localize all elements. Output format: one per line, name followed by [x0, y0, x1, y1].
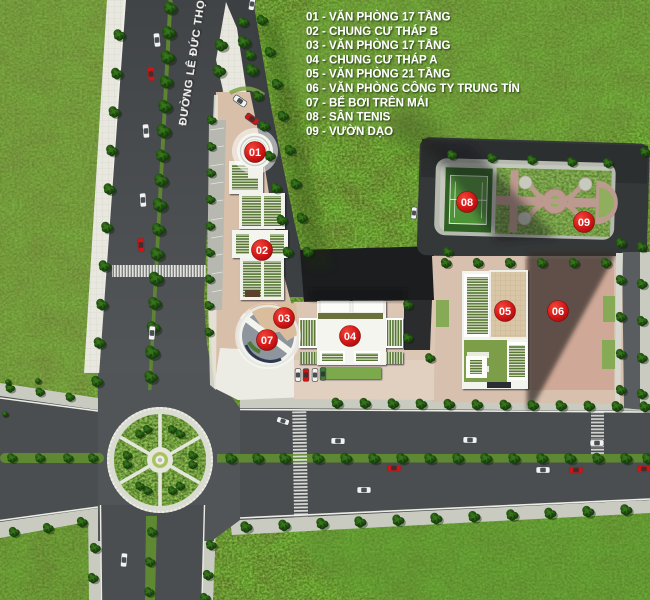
svg-text:01 - VĂN PHÒNG 17 TẦNG: 01 - VĂN PHÒNG 17 TẦNG — [306, 11, 450, 24]
svg-text:09 - VƯỜN DẠO: 09 - VƯỜN DẠO — [306, 125, 393, 138]
svg-text:07 - BỂ BƠI TRÊN MÁI: 07 - BỂ BƠI TRÊN MÁI — [306, 96, 428, 109]
svg-text:03 - VĂN PHÒNG 17 TẦNG: 03 - VĂN PHÒNG 17 TẦNG — [306, 39, 450, 52]
svg-text:06: 06 — [552, 306, 564, 318]
svg-text:02: 02 — [256, 245, 268, 257]
svg-text:01: 01 — [249, 147, 261, 159]
svg-text:05: 05 — [499, 306, 511, 318]
svg-text:07: 07 — [261, 335, 273, 347]
svg-text:03: 03 — [278, 313, 290, 325]
svg-text:05 - VĂN PHÒNG 21 TẦNG: 05 - VĂN PHÒNG 21 TẦNG — [306, 68, 450, 81]
svg-text:02 - CHUNG CƯ THÁP B: 02 - CHUNG CƯ THÁP B — [306, 25, 438, 38]
svg-text:04: 04 — [344, 331, 357, 343]
svg-text:09: 09 — [578, 217, 590, 229]
svg-text:04 - CHUNG CƯ THÁP A: 04 - CHUNG CƯ THÁP A — [306, 53, 438, 66]
svg-text:08: 08 — [461, 197, 473, 209]
svg-text:08 - SÂN TENIS: 08 - SÂN TENIS — [306, 111, 391, 124]
svg-text:06 - VĂN PHÒNG CÔNG TY TRUNG T: 06 - VĂN PHÒNG CÔNG TY TRUNG TÍN — [306, 82, 520, 95]
